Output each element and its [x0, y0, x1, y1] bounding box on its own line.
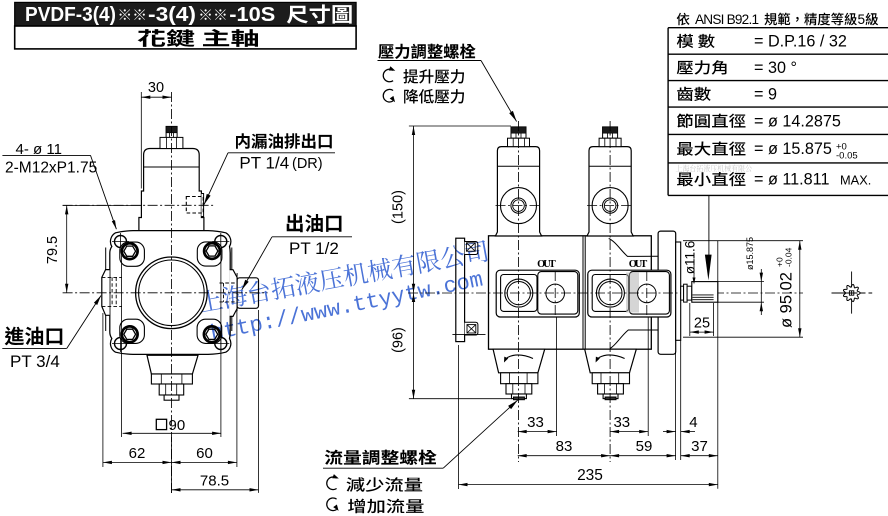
svg-text:59: 59 — [636, 438, 653, 455]
svg-text:79.5: 79.5 — [45, 236, 61, 264]
svg-text:60: 60 — [196, 445, 213, 462]
svg-text:MAX.: MAX. — [840, 173, 871, 188]
svg-text:PT 3/4: PT 3/4 — [10, 352, 60, 371]
svg-text:-3(4): -3(4) — [148, 3, 196, 26]
svg-text:37: 37 — [691, 438, 708, 455]
svg-text:(150): (150) — [391, 190, 407, 224]
svg-text:PT 1/4: PT 1/4 — [239, 154, 289, 173]
svg-text:= D.P.16 / 32: = D.P.16 / 32 — [754, 32, 847, 50]
svg-text:-0.04: -0.04 — [784, 247, 794, 267]
svg-text:78.5: 78.5 — [200, 473, 229, 490]
svg-text:OUT: OUT — [537, 259, 556, 270]
svg-text:= 30 °: = 30 ° — [754, 59, 797, 77]
svg-text:2-M12xP1.75: 2-M12xP1.75 — [5, 160, 97, 177]
svg-text:90: 90 — [169, 417, 186, 434]
svg-text:(DR): (DR) — [292, 156, 323, 172]
svg-text:= ø 15.875: = ø 15.875 — [754, 140, 832, 158]
svg-text:OUT: OUT — [629, 259, 648, 270]
svg-text:PT 1/2: PT 1/2 — [289, 239, 339, 258]
svg-text:-0.05: -0.05 — [836, 151, 858, 162]
svg-text:(96): (96) — [391, 327, 407, 353]
svg-text:= 9: = 9 — [754, 85, 777, 103]
svg-text:ø15.875: ø15.875 — [745, 237, 755, 270]
svg-text:ANSI B92.1: ANSI B92.1 — [695, 12, 759, 27]
svg-text:30: 30 — [148, 80, 164, 96]
svg-text:= ø 11.811: = ø 11.811 — [754, 171, 829, 189]
svg-text:ø11.6: ø11.6 — [683, 241, 698, 275]
svg-text:235: 235 — [577, 467, 603, 484]
svg-text:4: 4 — [689, 414, 697, 431]
svg-text:ø 95.02: ø 95.02 — [778, 272, 796, 328]
svg-text:62: 62 — [129, 445, 146, 462]
svg-text:83: 83 — [556, 438, 573, 455]
svg-text:PVDF-3(4): PVDF-3(4) — [25, 3, 116, 26]
svg-text:33: 33 — [613, 414, 630, 431]
svg-text:33: 33 — [527, 414, 544, 431]
svg-text:25: 25 — [694, 316, 710, 332]
svg-text:= ø 14.2875: = ø 14.2875 — [754, 112, 841, 130]
svg-text:-10S: -10S — [229, 3, 275, 26]
svg-text:5: 5 — [858, 12, 866, 27]
